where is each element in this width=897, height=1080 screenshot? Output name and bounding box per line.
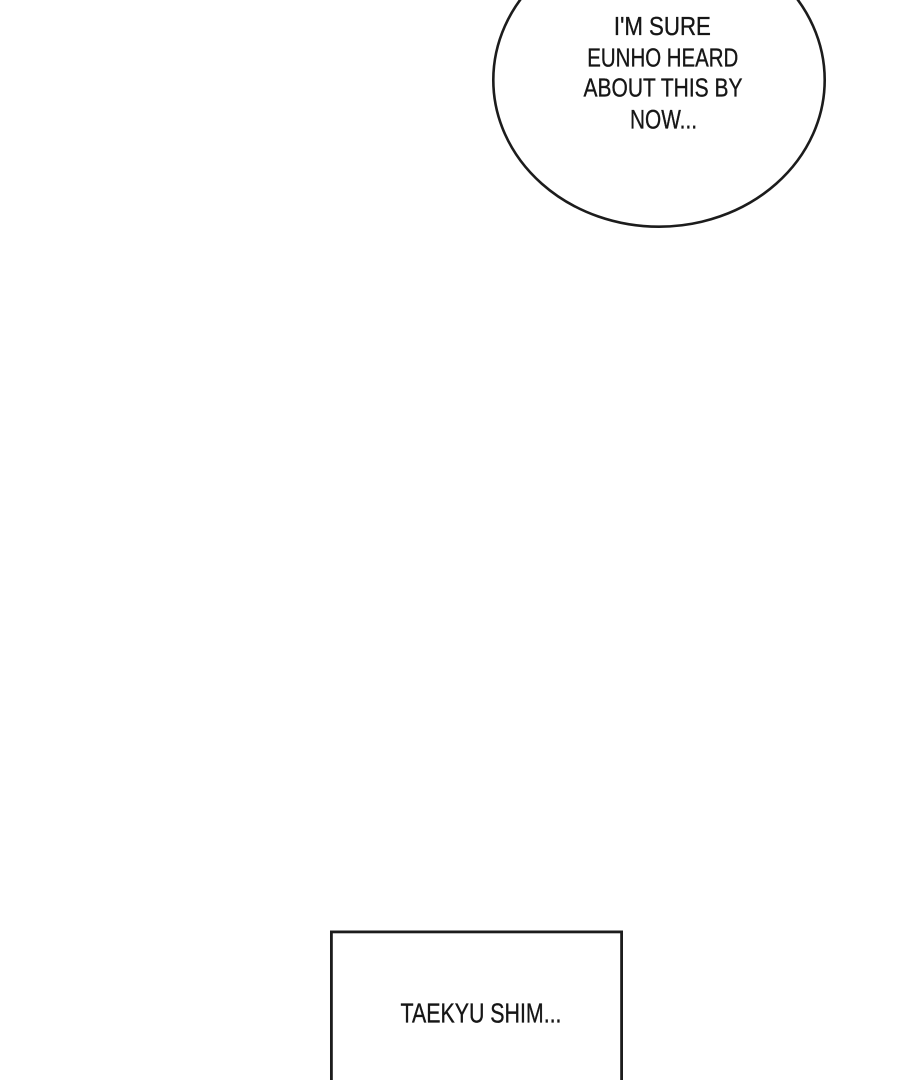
svg-text:TAEKYU SHIM...: TAEKYU SHIM... (401, 998, 562, 1029)
svg-text:EUNHO HEARD: EUNHO HEARD (587, 43, 738, 73)
svg-text:NOW...: NOW... (630, 104, 697, 134)
svg-text:I'M SURE: I'M SURE (614, 11, 711, 41)
svg-text:ABOUT THIS BY: ABOUT THIS BY (584, 72, 743, 102)
